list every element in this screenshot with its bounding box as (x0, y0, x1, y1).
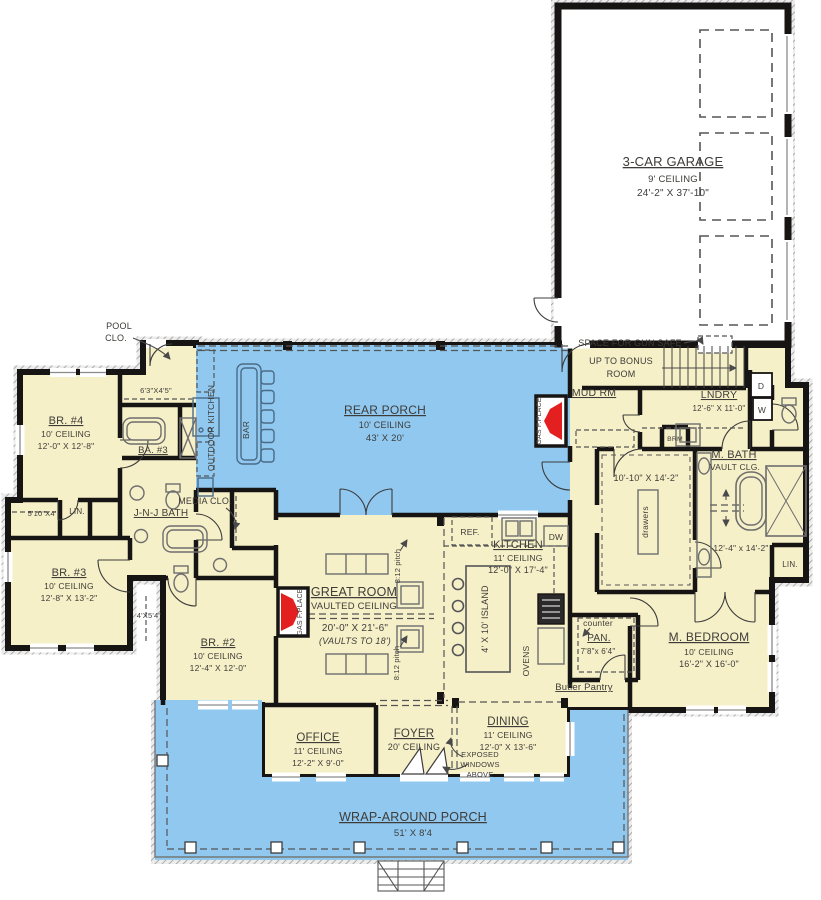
label-pool-1: POOL (106, 321, 132, 331)
label-island: 4' X 10' ISLAND (480, 585, 490, 653)
label-laundry-dims: 12'-6" X 11'-0" (693, 404, 746, 413)
label-mbr-dims: 16'-2" X 16'-0" (679, 659, 739, 669)
label-bonus-1: UP TO BONUS (589, 356, 653, 366)
gun-safe-outline (698, 336, 732, 353)
label-rear-porch-dims: 43' X 20' (366, 433, 404, 444)
label-gas-fireplace-1: GAS F.PLACE (536, 397, 543, 444)
label-pantry-dims: 7'8"x 6'4" (581, 647, 616, 656)
label-great-note: (VAULTS TO 18') (319, 636, 391, 646)
label-br2: BR. #2 (201, 637, 236, 649)
label-br2-clg: 10' CEILING (193, 651, 243, 661)
label-bonus-2: ROOM (607, 369, 636, 379)
label-counter: counter (583, 618, 613, 628)
label-br2-dims: 12'-4" X 12'-0" (190, 663, 247, 673)
label-dining-clg: 11' CEILING (483, 730, 532, 740)
label-bar: BAR (241, 421, 251, 439)
label-gun-safe: SPACE FOR GUN SAFE (578, 338, 681, 348)
label-jnj: J-N-J BATH (134, 508, 189, 519)
label-mclo-dims: 10'-10" X 14'-2" (613, 473, 678, 483)
label-mbr: M. BEDROOM (669, 630, 750, 644)
label-garage-ceiling: 9' CEILING (648, 174, 698, 185)
label-linen-right: LIN. (782, 560, 797, 569)
label-closet510: 5'10"X4' (28, 509, 57, 518)
label-butler: Butler Pantry (555, 682, 613, 693)
label-dining: DINING (487, 716, 528, 728)
label-fridge: REF. (460, 527, 479, 537)
label-exposed-1: EXPOSED (461, 750, 499, 759)
label-br4: BR. #4 (49, 415, 84, 427)
label-kitchen-clg: 11' CEILING (493, 553, 542, 563)
label-foyer-clg: 20' CEILING (388, 742, 440, 752)
label-broom: BRM (667, 436, 683, 443)
label-office-dims: 12'-2" X 9'-0" (292, 758, 344, 768)
label-pitch-1: 8:12 pitch (393, 549, 402, 584)
label-outdoor-kitchen: OUTDOOR KITCHEN (206, 385, 216, 471)
floor-plan-drawing: 3-CAR GARAGE 9' CEILING 24'-2" X 37'-10"… (0, 0, 821, 900)
label-office-clg: 11' CEILING (293, 746, 342, 756)
label-rear-porch-clg: 10' CEILING (359, 420, 411, 430)
label-dw: DW (549, 532, 564, 542)
label-dryer: D (758, 381, 764, 391)
label-pool-2: CLO. (105, 333, 127, 343)
label-closet63: 6'3"X4'5" (140, 386, 172, 395)
label-wrap-porch-dims: 51' X 8'4 (394, 828, 432, 839)
label-mud-room: MUD RM (572, 387, 616, 399)
label-kitchen-dims: 12'-0" X 17'-4" (488, 565, 548, 575)
floor-plan-document: 3-CAR GARAGE 9' CEILING 24'-2" X 37'-10"… (0, 0, 821, 900)
label-foyer: FOYER (394, 728, 435, 740)
label-br3-dims: 12'-8" X 13'-2" (41, 593, 98, 603)
label-br4-clg: 10' CEILING (41, 429, 91, 439)
label-media-clo: MEDIA CLO. (178, 496, 232, 506)
column-stub (452, 698, 459, 708)
label-garage-dims: 24'-2" X 37'-10" (637, 188, 709, 199)
label-pitch-2: 8:12 pitch (392, 646, 401, 681)
label-office: OFFICE (296, 732, 339, 744)
label-mbath-dims: 12'-4" x 14'-2" (713, 543, 768, 553)
label-ba3: BA. #3 (138, 445, 168, 456)
column-stub (561, 698, 568, 708)
label-br4-dims: 12'-0" X 12'-8" (38, 441, 95, 451)
label-exposed-2: WINDOWS (460, 760, 499, 769)
label-exposed-3: ABOVE (467, 770, 494, 779)
label-great-sub: VAULTED CEILING (311, 601, 397, 612)
label-rear-porch: REAR PORCH (344, 403, 426, 417)
column-stub (437, 514, 444, 526)
label-pantry: PAN. (587, 633, 610, 644)
label-garage-name: 3-CAR GARAGE (623, 154, 724, 169)
label-br3: BR. #3 (52, 567, 87, 579)
label-linen-left: LIN. (69, 507, 84, 516)
label-mbath: M. BATH (711, 449, 756, 461)
label-mbr-clg: 10' CEILING (684, 647, 734, 657)
label-great-dims: 20'-0" X 21'-6" (322, 623, 388, 634)
label-br3-clg: 10' CEILING (44, 581, 94, 591)
label-mbath-clg: VAULT CLG. (710, 462, 760, 472)
entry-steps (378, 861, 444, 891)
label-closet45: 4'X5'4" (137, 611, 162, 620)
label-laundry: LNDRY (701, 389, 737, 401)
column-stub (437, 692, 444, 704)
label-wrap-porch: WRAP-AROUND PORCH (339, 810, 487, 824)
label-kitchen: KITCHEN (493, 539, 543, 551)
label-great-room: GREAT ROOM (311, 585, 397, 599)
label-drawers: drawers (640, 506, 650, 538)
label-gas-fireplace-2: GAS F.PLACE (297, 588, 304, 635)
label-ovens: OVENS (521, 645, 531, 676)
label-washer: W (758, 405, 766, 415)
